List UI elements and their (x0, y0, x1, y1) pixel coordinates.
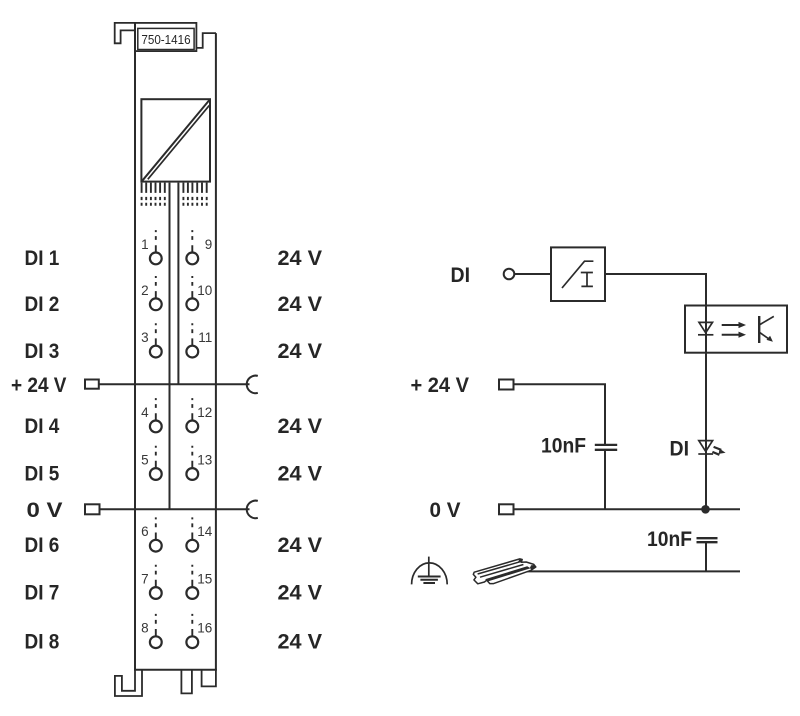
svg-text:24 V: 24 V (278, 339, 323, 363)
svg-text:24 V: 24 V (278, 533, 323, 557)
svg-text:DI 5: DI 5 (25, 462, 60, 486)
svg-text:5: 5 (141, 453, 149, 468)
svg-text:DI: DI (670, 436, 690, 460)
svg-text:DI 8: DI 8 (25, 630, 60, 654)
svg-text:4: 4 (141, 405, 149, 420)
svg-text:16: 16 (197, 621, 212, 636)
svg-text:DI 2: DI 2 (25, 292, 60, 316)
svg-text:+ 24 V: + 24 V (11, 373, 67, 397)
svg-text:3: 3 (141, 330, 149, 345)
svg-text:15: 15 (197, 572, 212, 587)
svg-text:10: 10 (197, 283, 212, 298)
svg-text:7: 7 (141, 572, 149, 587)
svg-text:750-1416: 750-1416 (141, 33, 190, 47)
svg-text:13: 13 (197, 453, 212, 468)
svg-text:0 V: 0 V (430, 498, 462, 522)
svg-text:24 V: 24 V (278, 581, 323, 605)
svg-text:DI 6: DI 6 (25, 533, 60, 557)
svg-text:+ 24 V: + 24 V (411, 373, 470, 397)
svg-text:8: 8 (141, 621, 149, 636)
svg-text:24 V: 24 V (278, 462, 323, 486)
svg-text:DI 1: DI 1 (25, 246, 60, 270)
svg-text:DI 7: DI 7 (25, 581, 60, 605)
svg-text:9: 9 (205, 237, 213, 252)
svg-text:6: 6 (141, 524, 149, 539)
svg-text:0 V: 0 V (27, 498, 64, 522)
svg-text:24 V: 24 V (278, 246, 323, 270)
svg-text:2: 2 (141, 283, 149, 298)
svg-text:DI 3: DI 3 (25, 339, 60, 363)
svg-text:12: 12 (197, 405, 212, 420)
svg-text:24 V: 24 V (278, 292, 323, 316)
svg-text:DI 4: DI 4 (25, 414, 60, 438)
svg-text:14: 14 (197, 524, 213, 539)
svg-text:DI: DI (451, 263, 471, 287)
svg-text:1: 1 (141, 237, 149, 252)
svg-text:24 V: 24 V (278, 414, 323, 438)
svg-text:10nF: 10nF (647, 527, 692, 551)
svg-text:10nF: 10nF (541, 433, 586, 457)
svg-text:11: 11 (198, 330, 212, 345)
svg-text:24 V: 24 V (278, 630, 323, 654)
